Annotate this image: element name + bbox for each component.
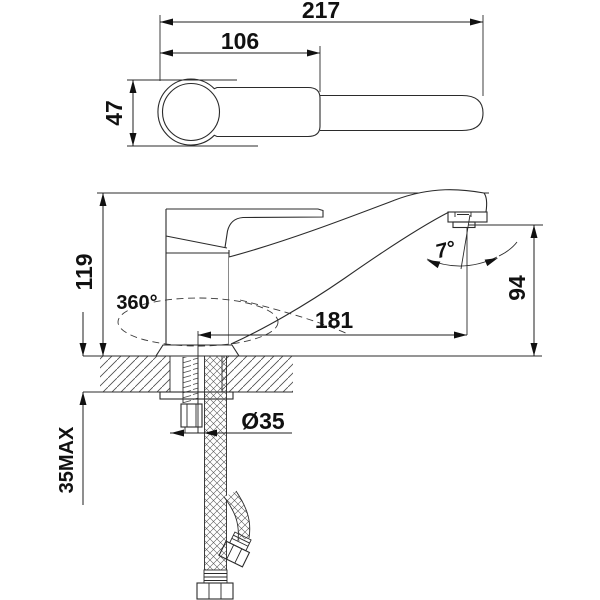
dim-35max: 35MAX [56,312,87,505]
countertop [83,356,542,392]
dim-label-hole-diameter: Ø35 [241,408,285,434]
hose-main [205,356,227,570]
drawing-svg: 217 106 47 [0,0,600,600]
top-view-spout-tube [320,96,483,131]
faucet-technical-drawing: 217 106 47 [0,0,600,600]
top-view-dim-arrows [130,19,484,147]
dim-119: 119 [71,193,107,356]
front-view: 119 35MAX 94 181 [56,190,543,599]
dim-label-swivel: 360° [116,292,157,314]
faucet-base [156,345,239,356]
dim-label-spout-height: 94 [504,275,530,301]
top-view-body-inner-circle [163,84,220,141]
threaded-stud [183,357,198,403]
dim-label-outlet-angle: 7° [434,237,459,263]
dim-94: 94 [468,225,543,356]
dim-7deg: 7° [426,215,517,269]
dim-hole-diameter: Ø35 [170,408,292,437]
dim-label-body-width: 47 [101,100,127,126]
top-view-body-outline [158,79,320,145]
mounting-nut [181,404,202,427]
main-hose-nut [197,583,233,599]
dim-label-handle-length: 106 [221,28,259,54]
dim-label-height: 119 [71,253,97,290]
dim-label-deck-max: 35MAX [56,426,78,493]
main-hose-coupling [204,570,227,583]
counter-hatch-right [222,357,293,392]
dim-label-overall-length: 217 [302,0,340,23]
top-view: 217 106 47 [101,0,483,146]
counter-hatch-left [100,357,170,392]
dim-label-spout-reach: 181 [315,307,354,333]
